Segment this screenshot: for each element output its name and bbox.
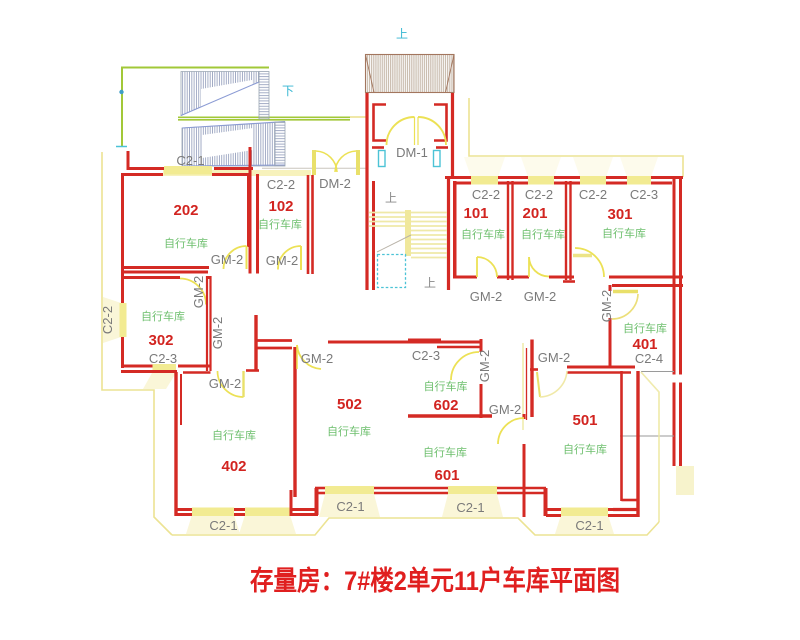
svg-text:GM-2: GM-2 bbox=[301, 351, 334, 366]
svg-text:GM-2: GM-2 bbox=[470, 289, 503, 304]
svg-text:501: 501 bbox=[572, 412, 597, 429]
svg-text:GM-2: GM-2 bbox=[210, 317, 225, 350]
svg-text:602: 602 bbox=[433, 397, 458, 414]
svg-text:C2-2: C2-2 bbox=[525, 187, 553, 202]
svg-text:DM-2: DM-2 bbox=[319, 176, 351, 191]
svg-text:C2-1: C2-1 bbox=[209, 518, 237, 533]
svg-text:502: 502 bbox=[337, 396, 362, 413]
svg-text:C2-1: C2-1 bbox=[456, 500, 484, 515]
svg-text:C2-1: C2-1 bbox=[336, 499, 364, 514]
svg-text:存量房：7#楼2单元11户车库平面图: 存量房：7#楼2单元11户车库平面图 bbox=[250, 565, 620, 596]
svg-text:101: 101 bbox=[463, 205, 488, 222]
svg-text:自行车库: 自行车库 bbox=[212, 428, 256, 442]
svg-text:自行车库: 自行车库 bbox=[563, 442, 607, 456]
svg-text:C2-4: C2-4 bbox=[635, 351, 663, 366]
svg-text:上: 上 bbox=[396, 27, 408, 41]
svg-text:GM-2: GM-2 bbox=[524, 289, 557, 304]
svg-text:GM-2: GM-2 bbox=[489, 402, 522, 417]
svg-text:201: 201 bbox=[522, 205, 547, 222]
svg-text:GM-2: GM-2 bbox=[266, 253, 299, 268]
svg-text:402: 402 bbox=[221, 458, 246, 475]
svg-text:202: 202 bbox=[173, 202, 198, 219]
svg-text:C2-3: C2-3 bbox=[630, 187, 658, 202]
svg-text:GM-2: GM-2 bbox=[538, 350, 571, 365]
svg-text:自行车库: 自行车库 bbox=[602, 226, 646, 240]
svg-text:102: 102 bbox=[268, 198, 293, 215]
svg-text:C2-1: C2-1 bbox=[575, 518, 603, 533]
svg-text:上: 上 bbox=[385, 191, 397, 205]
svg-text:C2-2: C2-2 bbox=[579, 187, 607, 202]
svg-text:上: 上 bbox=[424, 276, 436, 290]
svg-text:GM-2: GM-2 bbox=[477, 350, 492, 383]
svg-text:自行车库: 自行车库 bbox=[623, 321, 667, 335]
svg-text:自行车库: 自行车库 bbox=[327, 424, 371, 438]
svg-text:自行车库: 自行车库 bbox=[521, 227, 565, 241]
svg-text:自行车库: 自行车库 bbox=[424, 379, 468, 393]
svg-text:301: 301 bbox=[607, 206, 632, 223]
svg-text:自行车库: 自行车库 bbox=[461, 227, 505, 241]
svg-text:601: 601 bbox=[434, 467, 459, 484]
svg-text:自行车库: 自行车库 bbox=[164, 236, 208, 250]
svg-text:GM-2: GM-2 bbox=[599, 290, 614, 323]
svg-text:C2-2: C2-2 bbox=[267, 177, 295, 192]
svg-text:302: 302 bbox=[148, 332, 173, 349]
svg-text:C2-2: C2-2 bbox=[100, 306, 115, 334]
svg-text:自行车库: 自行车库 bbox=[141, 309, 185, 323]
svg-text:C2-3: C2-3 bbox=[149, 351, 177, 366]
svg-text:C2-1: C2-1 bbox=[176, 153, 204, 168]
svg-text:C2-3: C2-3 bbox=[412, 348, 440, 363]
svg-text:下: 下 bbox=[282, 84, 294, 98]
svg-text:DM-1: DM-1 bbox=[396, 145, 428, 160]
svg-text:自行车库: 自行车库 bbox=[423, 445, 467, 459]
svg-text:GM-2: GM-2 bbox=[211, 252, 244, 267]
svg-text:GM-2: GM-2 bbox=[209, 376, 242, 391]
svg-text:GM-2: GM-2 bbox=[191, 276, 206, 309]
svg-text:C2-2: C2-2 bbox=[472, 187, 500, 202]
svg-text:自行车库: 自行车库 bbox=[258, 217, 302, 231]
